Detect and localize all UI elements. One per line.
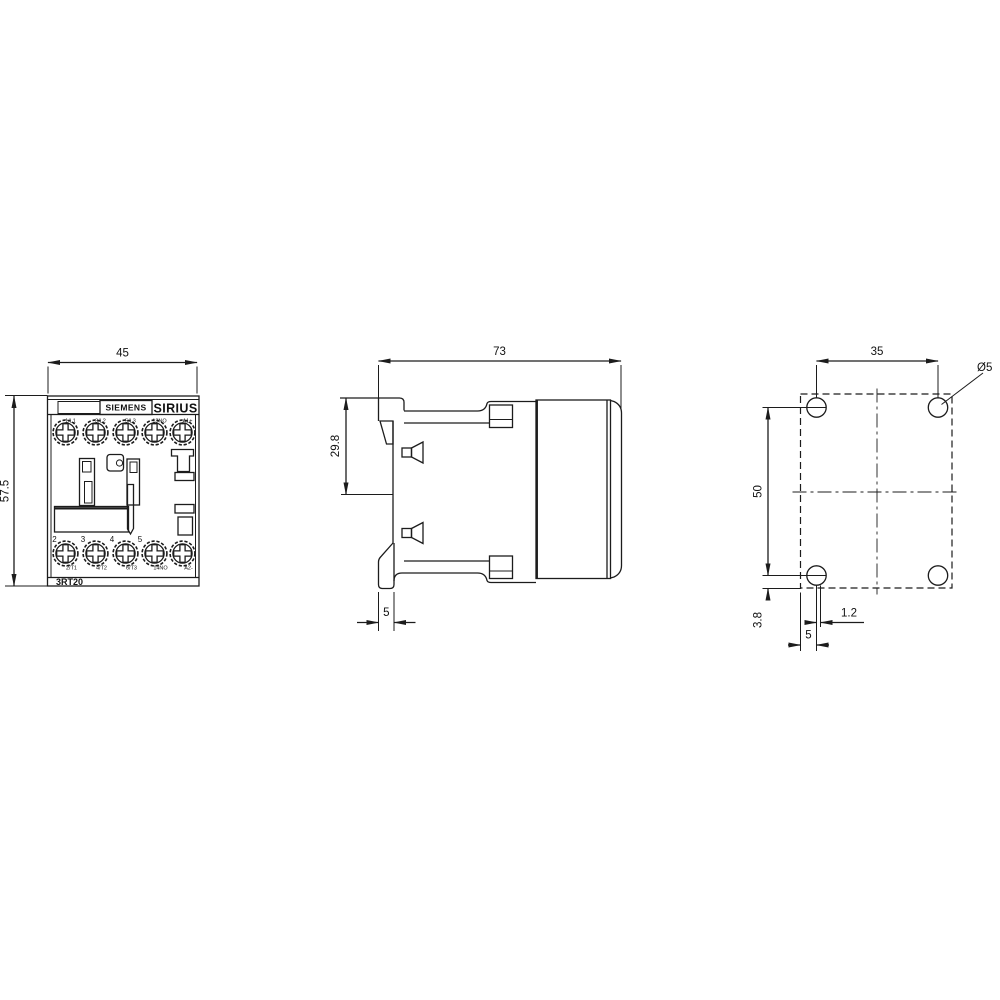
terminal-label: 1/L1 [65, 419, 76, 425]
side-profile [340, 398, 622, 589]
top-terminal-labels: 1/L1 3/L2 5/L3 13NO A1+ [65, 419, 192, 425]
side-flange-dim-label: 5 [383, 607, 389, 619]
terminal-label: 14NO [153, 566, 168, 572]
terminal-label: 4/T2 [96, 566, 107, 572]
din-hook-top [380, 421, 393, 444]
terminal-label: 6/T3 [126, 566, 137, 572]
mounting-hole [928, 566, 947, 585]
din-hook-bottom [379, 543, 395, 589]
front-width-dim-label: 45 [116, 348, 129, 360]
front-width-dimension: 45 [48, 348, 197, 394]
terminal-label: 2/T1 [66, 566, 77, 572]
rear-bottom-offset-label: 3.8 [753, 612, 765, 628]
hole-diameter-label: Ø5 [977, 362, 992, 374]
rear-edge-offset-label: 5 [805, 630, 811, 642]
terminal-label: 5/L3 [125, 419, 136, 425]
side-rail-dim-label: 29.8 [330, 435, 342, 457]
model-label: 3RT20 [56, 577, 83, 587]
side-depth-dim-label: 73 [493, 346, 506, 358]
terminal-block-top [490, 405, 513, 428]
dimensional-drawing-page: 45 57.5 SIEMENS SIRIUS 1/L1 3/L2 5/L3 13… [0, 0, 1000, 1000]
terminal-block-bottom [490, 556, 513, 579]
din-release-slot [172, 450, 194, 472]
front-height-dimension: 57.5 [0, 396, 48, 587]
side-rail-dimension: 29.8 [330, 398, 393, 495]
series-label: SIRIUS [154, 402, 198, 416]
mounting-footprint [801, 394, 953, 588]
pole-number: 5 [138, 535, 143, 544]
front-view: 45 57.5 SIEMENS SIRIUS 1/L1 3/L2 5/L3 13… [0, 348, 199, 587]
rear-pitch-x-label: 35 [871, 346, 884, 358]
terminal-label: 13NO [152, 419, 167, 425]
terminal-label: 3/L2 [95, 419, 106, 425]
front-height-dim-label: 57.5 [0, 480, 12, 502]
rear-edge-offset-dimension: 5 [788, 630, 829, 646]
side-view: 73 29.8 [330, 346, 622, 631]
contactor-body-side [536, 400, 611, 579]
brand-label: SIEMENS [105, 403, 146, 413]
rear-pitch-y-label: 50 [753, 485, 765, 498]
mounting-hole [928, 398, 947, 417]
terminal-label: A2- [184, 566, 193, 572]
rear-slot-offset-label: 1.2 [841, 608, 857, 620]
rear-bottom-offset-dimension: 3.8 [753, 589, 802, 629]
terminal-label: A1+ [183, 419, 193, 425]
nameplate-window [55, 507, 129, 533]
bottom-terminal-labels: 2/T1 4/T2 6/T3 14NO A2- [66, 566, 193, 572]
technical-drawing: 45 57.5 SIEMENS SIRIUS 1/L1 3/L2 5/L3 13… [0, 0, 1000, 1000]
coil-window [107, 455, 124, 472]
rear-pitch-y-dimension: 50 [753, 408, 827, 576]
front-center-features [55, 450, 195, 536]
rear-view: 35 Ø5 50 3.8 [753, 346, 993, 651]
label-strip-window [58, 402, 100, 414]
hole-diameter-callout: Ø5 [942, 362, 993, 405]
pole-number: 3 [81, 535, 86, 544]
side-flange-dimension: 5 [357, 592, 416, 631]
pole-number: 4 [110, 535, 115, 544]
pole-number: 2 [52, 535, 57, 544]
coil-cap [611, 401, 622, 579]
rear-slot-offset-dimension: 1.2 [806, 608, 864, 623]
